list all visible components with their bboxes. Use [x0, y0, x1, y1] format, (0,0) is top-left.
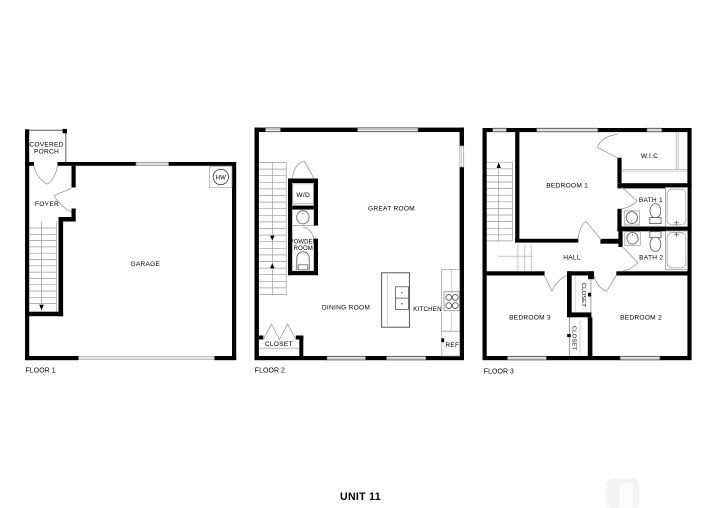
svg-text:BEDROOM 2: BEDROOM 2 — [620, 315, 662, 322]
svg-text:GARAGE: GARAGE — [130, 261, 160, 268]
svg-text:BEDROOM 1: BEDROOM 1 — [546, 182, 588, 189]
svg-text:HW: HW — [216, 175, 227, 181]
svg-text:REF: REF — [445, 342, 459, 349]
svg-text:HALL: HALL — [563, 255, 581, 262]
svg-text:CLOSET: CLOSET — [265, 341, 293, 348]
svg-text:PORCH: PORCH — [34, 149, 59, 156]
svg-text:W/D: W/D — [296, 192, 310, 199]
svg-text:COVERED: COVERED — [29, 142, 63, 149]
svg-text:FLOOR 2: FLOOR 2 — [255, 368, 285, 375]
svg-text:GREAT ROOM: GREAT ROOM — [368, 205, 415, 212]
svg-text:FOYER: FOYER — [35, 201, 59, 208]
svg-text:CLOSET: CLOSET — [580, 283, 586, 307]
svg-text:BATH 1: BATH 1 — [639, 197, 663, 204]
svg-text:ROOM: ROOM — [294, 246, 313, 252]
svg-text:W.I.C: W.I.C — [641, 153, 658, 160]
svg-text:UNIT 11: UNIT 11 — [340, 491, 381, 503]
svg-text:POWDER: POWDER — [289, 239, 317, 245]
svg-text:BATH 2: BATH 2 — [639, 255, 663, 262]
svg-text:CLOSET: CLOSET — [571, 326, 577, 350]
svg-text:KITCHEN: KITCHEN — [413, 306, 442, 313]
svg-text:BEDROOM 3: BEDROOM 3 — [509, 315, 551, 322]
svg-text:DINING ROOM: DINING ROOM — [322, 305, 370, 312]
svg-text:FLOOR 3: FLOOR 3 — [484, 368, 514, 375]
svg-text:FLOOR 1: FLOOR 1 — [26, 368, 56, 375]
